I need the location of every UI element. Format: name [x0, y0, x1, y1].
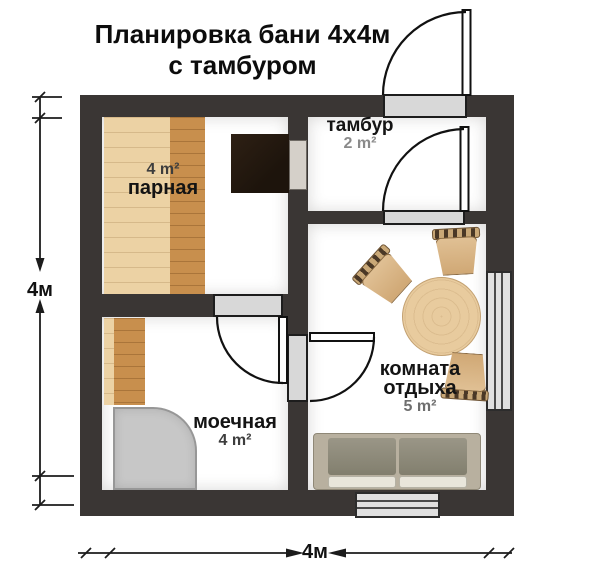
wash-room-bench-dark	[114, 318, 145, 405]
sofa-seat-cushion	[399, 476, 467, 488]
chair-seat	[435, 236, 479, 276]
label-rest-room: комната отдыха 5 m²	[368, 360, 472, 416]
washing-room-name: моечная	[183, 413, 287, 432]
window-right-wall	[486, 271, 512, 411]
plan-title: Планировка бани 4х4м с тамбуром	[50, 19, 435, 81]
rest-room-name-line2: отдыха	[368, 379, 472, 398]
label-steam-room: 4 m² парная	[111, 161, 215, 198]
plan-title-line1: Планировка бани 4х4м	[50, 19, 435, 50]
door-entrance-leaf	[463, 10, 471, 95]
stove-firebox-port	[289, 140, 307, 190]
round-dining-table	[402, 277, 481, 356]
stove	[231, 134, 289, 193]
doorway-steam-room	[213, 294, 283, 317]
dimension-left-label: 4м	[22, 279, 58, 302]
vestibule-name: тамбур	[308, 116, 412, 135]
steam-room-bench-light	[104, 117, 170, 294]
steam-room-name: парная	[111, 179, 215, 198]
floor-plan-canvas: Планировка бани 4х4м с тамбуром	[0, 0, 600, 578]
sofa-back-cushion	[399, 438, 467, 475]
window-bottom-wall	[355, 492, 440, 518]
label-washing-room: моечная 4 m²	[183, 413, 287, 450]
doorway-vestibule-rest	[383, 210, 465, 225]
sofa	[313, 433, 481, 490]
doorway-wash-rest	[287, 334, 308, 402]
vestibule-area: 2 m²	[308, 135, 412, 153]
plan-title-line2: с тамбуром	[50, 50, 435, 81]
dimension-bottom-label: 4м	[294, 541, 336, 564]
rest-room-area: 5 m²	[368, 398, 472, 416]
washing-room-area: 4 m²	[183, 432, 287, 450]
chair-top	[433, 227, 481, 277]
wash-room-bench-light	[104, 318, 114, 405]
doorway-entrance	[383, 94, 467, 118]
sofa-seat-cushion	[328, 476, 396, 488]
sofa-back-cushion	[328, 438, 396, 475]
label-vestibule: тамбур 2 m²	[308, 116, 412, 153]
steam-room-bench-dark	[170, 117, 205, 294]
